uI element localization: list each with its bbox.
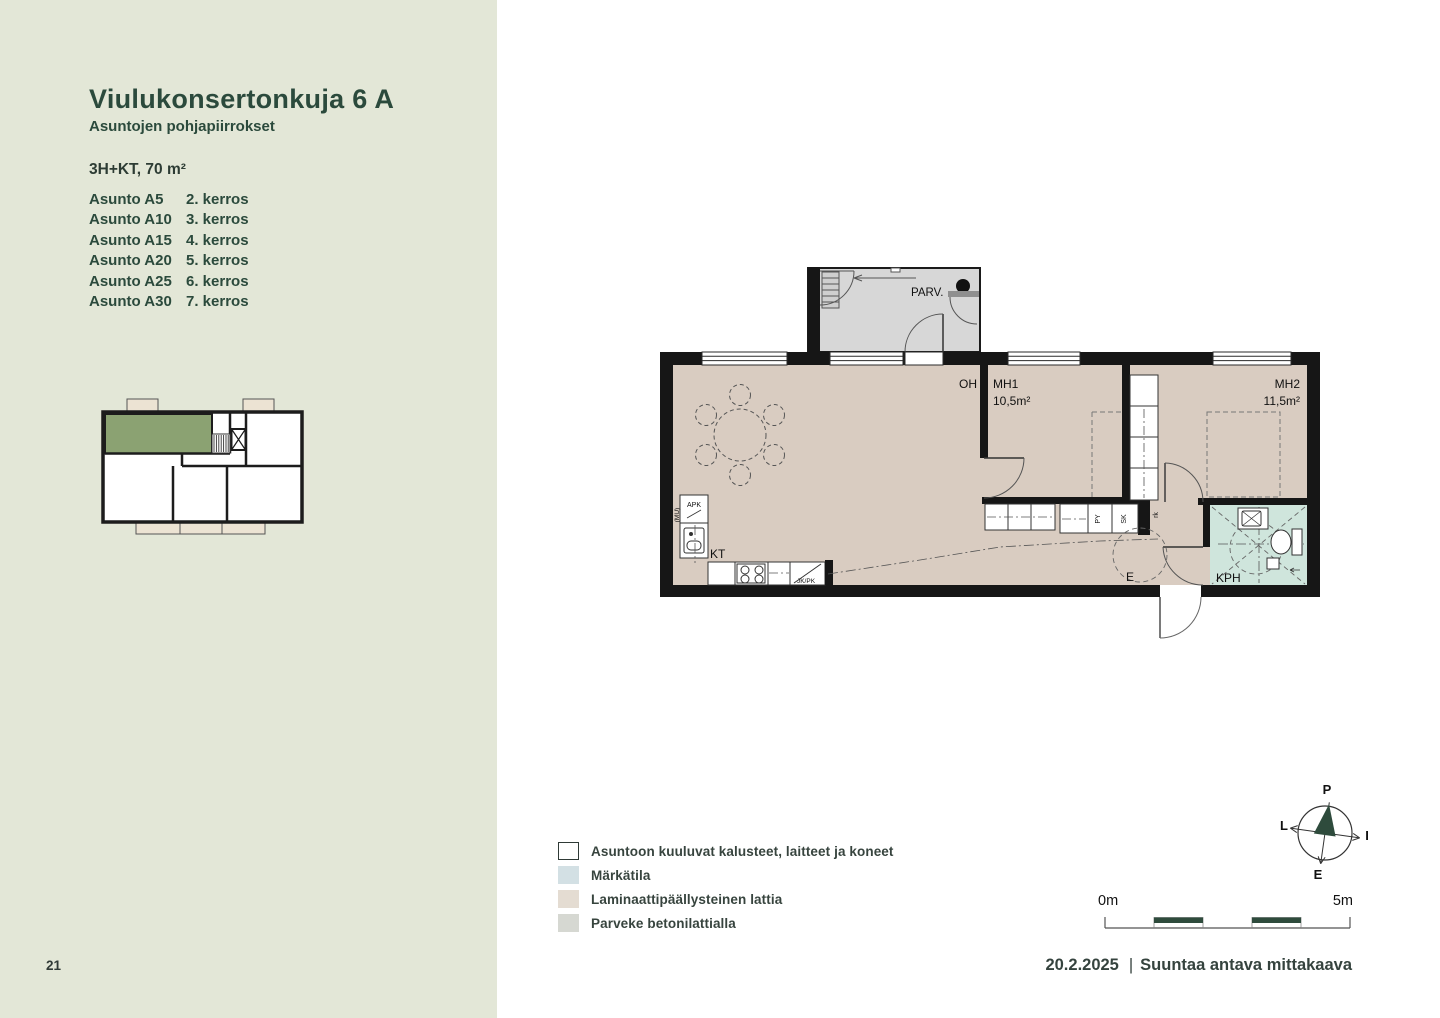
scale-bar: 0m 5m	[1082, 888, 1372, 936]
page-subtitle: Asuntojen pohjapiirrokset	[89, 118, 275, 135]
legend-swatch-wet-room	[558, 866, 579, 884]
kitchen-sink-icon	[684, 528, 704, 553]
footer-separator: |	[1129, 956, 1133, 974]
bathroom-sink-icon	[1238, 508, 1268, 529]
apartment-name: Asunto A20	[89, 252, 186, 269]
legend-label: Asuntoon kuuluvat kalusteet, laitteet ja…	[591, 844, 894, 859]
scale-segment	[1154, 918, 1203, 924]
room-label-bedroom2: MH2	[1275, 377, 1301, 391]
hall-closet-row	[985, 504, 1055, 530]
apartment-name: Asunto A10	[89, 211, 186, 228]
legend: Asuntoon kuuluvat kalusteet, laitteet ja…	[558, 842, 894, 938]
balcony: PARV.	[808, 267, 980, 352]
balcony-top-tick	[891, 268, 900, 272]
page-number: 21	[46, 958, 61, 973]
legend-label: Märkätila	[591, 868, 650, 883]
legend-item: Parveke betonilattialla	[558, 914, 894, 932]
key-plan-elevator-icon	[232, 429, 246, 450]
apartment-floor: 4. kerros	[186, 232, 249, 249]
label-dishwasher: APK	[687, 502, 701, 509]
key-plan-stairs-icon	[212, 434, 230, 453]
scale-segment	[1252, 918, 1301, 924]
footer-scale-note: Suuntaa antava mittakaava	[1140, 956, 1352, 974]
apartment-floor: 7. kerros	[186, 293, 249, 310]
floor-plan: PARV.	[660, 267, 1320, 642]
label-mu: (MU)	[674, 508, 681, 522]
key-plan	[100, 396, 305, 536]
sidebar: Viulukonsertonkuja 6 A Asuntojen pohjapi…	[0, 0, 497, 1018]
apartment-floor: 6. kerros	[186, 273, 249, 290]
page-title: Viulukonsertonkuja 6 A	[89, 84, 394, 115]
room-label-living: OH	[959, 377, 977, 391]
apartment-name: Asunto A25	[89, 273, 186, 290]
room-area-bedroom2: 11,5m²	[1264, 394, 1300, 408]
balcony-door-opening	[905, 352, 943, 365]
legend-item: Laminaattipäällysteinen lattia	[558, 890, 894, 908]
apartment-floor: 2. kerros	[186, 191, 249, 208]
label-rk: rk	[1153, 512, 1160, 518]
bedroom2-wardrobes	[1130, 375, 1158, 500]
room-label-entrance: E	[1126, 570, 1134, 584]
key-plan-highlighted-apartment	[105, 414, 212, 454]
scale-start-label: 0m	[1098, 893, 1118, 909]
compass-north-label: P	[1323, 782, 1332, 797]
brochure-page: Viulukonsertonkuja 6 A Asuntojen pohjapi…	[0, 0, 1440, 1018]
label-sk: SK	[1121, 514, 1128, 524]
toilet-icon	[1271, 529, 1302, 555]
room-label-bedroom1: MH1	[993, 377, 1019, 391]
apartment-row: Asunto A15 4. kerros	[89, 230, 249, 251]
legend-swatch-laminate	[558, 890, 579, 908]
label-fridge: JK/PK	[797, 578, 816, 585]
drain-box-icon	[1267, 558, 1279, 569]
legend-label: Laminaattipäällysteinen lattia	[591, 892, 782, 907]
window	[1008, 352, 1080, 365]
apartment-row: Asunto A25 6. kerros	[89, 271, 249, 292]
balcony-label: PARV.	[911, 287, 943, 299]
room-label-kitchen: KT	[710, 547, 726, 561]
window	[702, 352, 787, 365]
apartment-name: Asunto A15	[89, 232, 186, 249]
legend-swatch-furniture	[558, 842, 579, 860]
scale-end-label: 5m	[1333, 893, 1353, 909]
legend-item: Märkätila	[558, 866, 894, 884]
compass-rose: P L I E	[1278, 778, 1378, 890]
apartment-name: Asunto A5	[89, 191, 186, 208]
apartment-list: Asunto A5 2. kerros Asunto A10 3. kerros…	[89, 189, 249, 312]
unit-type-heading: 3H+KT, 70 m²	[89, 161, 186, 179]
compass-west-label: L	[1280, 818, 1288, 833]
legend-item: Asuntoon kuuluvat kalusteet, laitteet ja…	[558, 842, 894, 860]
legend-label: Parveke betonilattialla	[591, 916, 736, 931]
footer-date: 20.2.2025	[1045, 956, 1118, 974]
balcony-ladder-icon	[822, 272, 839, 308]
balcony-partition	[948, 291, 979, 297]
compass-south-label: E	[1314, 867, 1323, 882]
label-py: PY	[1095, 514, 1102, 524]
legend-swatch-balcony	[558, 914, 579, 932]
room-area-bedroom1: 10,5m²	[993, 394, 1030, 408]
window	[830, 352, 903, 365]
apartment-row: Asunto A20 5. kerros	[89, 251, 249, 272]
apartment-row: Asunto A5 2. kerros	[89, 189, 249, 210]
apartment-floor: 3. kerros	[186, 211, 249, 228]
window	[1213, 352, 1291, 365]
footer-note: 20.2.2025|Suuntaa antava mittakaava	[1045, 956, 1352, 975]
entrance-door	[1160, 585, 1201, 638]
apartment-name: Asunto A30	[89, 293, 186, 310]
apartment-row: Asunto A30 7. kerros	[89, 292, 249, 313]
compass-east-label: I	[1365, 828, 1369, 843]
apartment-row: Asunto A10 3. kerros	[89, 210, 249, 231]
room-label-bathroom: KPH	[1216, 571, 1241, 585]
apartment-floor: 5. kerros	[186, 252, 249, 269]
balcony-column	[956, 279, 970, 293]
